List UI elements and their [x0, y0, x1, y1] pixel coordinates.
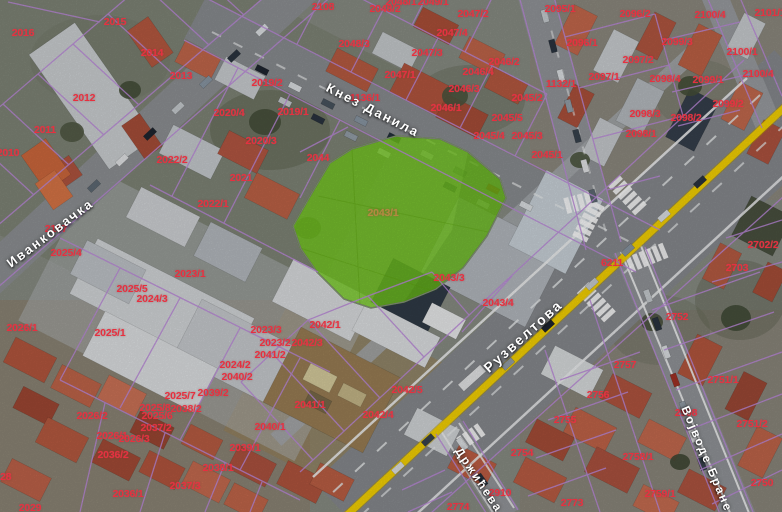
map-viewport: 2043/1 20162015201420132012201120102019/…	[0, 0, 782, 512]
map-canvas	[0, 0, 782, 512]
image-grain	[0, 0, 782, 512]
